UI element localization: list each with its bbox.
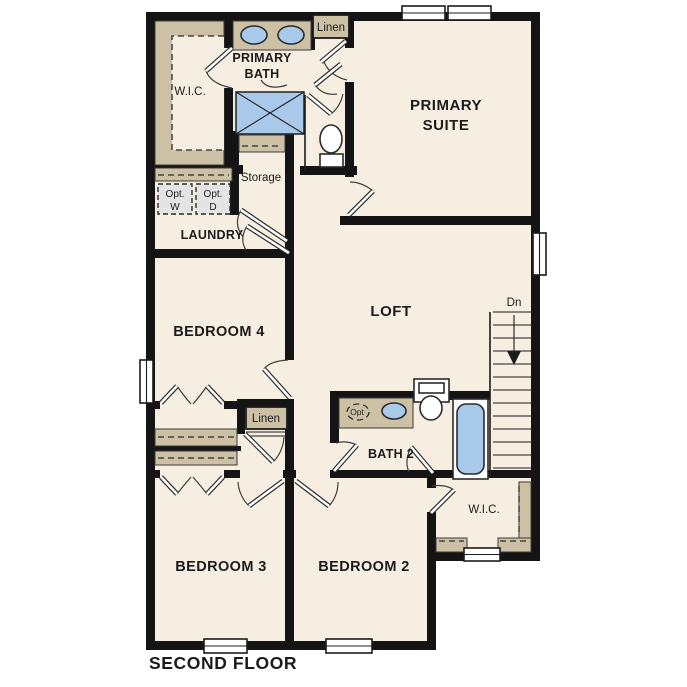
- storage-label: Storage: [241, 172, 281, 184]
- primary-bath-label-2: BATH: [245, 67, 280, 81]
- linen-hall-label: Linen: [252, 413, 280, 425]
- bedroom3-label: BEDROOM 3: [175, 559, 266, 575]
- window-icon: [464, 548, 500, 561]
- shower-icon: [236, 92, 304, 134]
- opt-sink-label: Opt: [350, 407, 364, 417]
- opt-dryer-label-1: Opt.: [204, 189, 223, 200]
- storage-shelf: [239, 135, 285, 152]
- floor-plan-image: PRIMARY BATH Linen W.I.C. PRIMARY SUITE …: [0, 0, 687, 687]
- window-icon: [402, 6, 445, 20]
- loft-label: LOFT: [370, 303, 411, 320]
- window-icon: [140, 360, 153, 403]
- opt-washer-label-2: W: [170, 202, 180, 213]
- primary-suite-label-1: PRIMARY: [410, 97, 482, 114]
- linen-top-label: Linen: [317, 22, 345, 34]
- wic2-label: W.I.C.: [468, 504, 499, 516]
- opt-washer-label-1: Opt.: [166, 189, 185, 200]
- primary-suite-label-2: SUITE: [423, 117, 470, 134]
- window-icon: [448, 6, 491, 20]
- primary-wic-label: W.I.C.: [174, 86, 205, 98]
- opt-dryer-label-2: D: [209, 202, 216, 213]
- toilet-icon: [419, 383, 444, 420]
- sink-icon: [278, 26, 304, 44]
- sink-icon: [382, 403, 406, 419]
- bathtub-icon: [453, 399, 488, 479]
- sink-icon: [241, 26, 267, 44]
- toilet-icon: [320, 125, 343, 167]
- primary-bath-label-1: PRIMARY: [232, 51, 292, 65]
- window-icon: [533, 233, 546, 275]
- bedroom4-label: BEDROOM 4: [173, 324, 264, 340]
- bath2-label: BATH 2: [368, 447, 414, 461]
- bedroom2-label: BEDROOM 2: [318, 559, 409, 575]
- window-icon: [204, 639, 247, 653]
- floor-plan-svg: PRIMARY BATH Linen W.I.C. PRIMARY SUITE …: [0, 0, 687, 687]
- stairs-dn-label: Dn: [507, 297, 522, 309]
- floor-title: SECOND FLOOR: [149, 653, 297, 673]
- window-icon: [326, 639, 372, 653]
- laundry-label: LAUNDRY: [181, 228, 244, 242]
